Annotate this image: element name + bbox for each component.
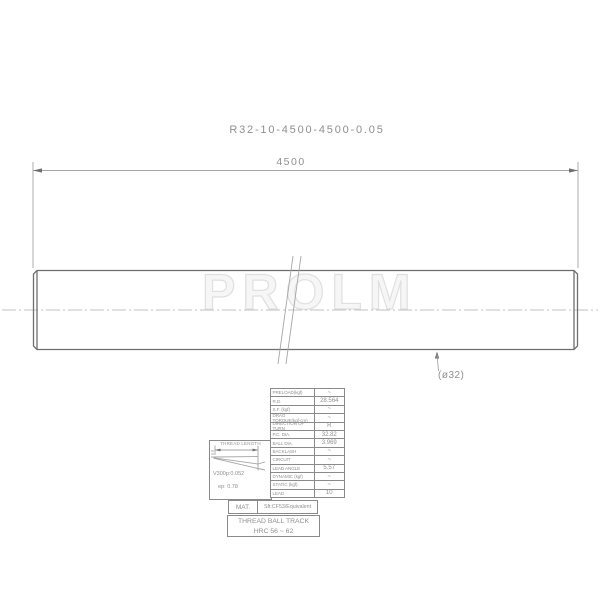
- table-row: DIRECTION OF TURNR: [271, 422, 344, 430]
- hardness-box: THREAD BALL TRACK HRC 56 ~ 62: [227, 515, 320, 537]
- diameter-callout-text: (ø32): [438, 370, 464, 381]
- material-value: Sft:CF53/Equivalent: [258, 501, 317, 513]
- dim-arrow-right: [569, 168, 578, 172]
- diameter-leader: [435, 352, 439, 372]
- table-row: LEAD ANGLE5.57: [271, 464, 344, 472]
- travel-variation-value: V300p:0.052: [213, 471, 244, 477]
- drawing-title: R32-10-4500-4500-0.05: [0, 124, 600, 136]
- table-row: DRAG TORQUE(kgf-cm)~: [271, 413, 344, 421]
- table-row: CIRCUIT~: [271, 455, 344, 463]
- material-label: MAT.: [229, 501, 258, 513]
- table-row: R.D.28.564: [271, 396, 344, 404]
- hardness-line2: HRC 56 ~ 62: [228, 527, 319, 537]
- table-row: S.F. (kgf)~: [271, 405, 344, 413]
- table-row: BALL DIA.3.969: [271, 438, 344, 446]
- travel-error-value: ep: 0.78: [218, 484, 238, 490]
- table-row: PRELOAD(kgf)~: [271, 389, 344, 396]
- table-row: LEAD10: [271, 489, 344, 497]
- thread-detail-heading: THREAD LENGTH: [209, 441, 272, 446]
- length-dimension-lines: [33, 162, 578, 268]
- length-dimension-text: 4500: [241, 156, 341, 168]
- thread-detail-box: [209, 440, 272, 500]
- material-box: MAT. Sft:CF53/Equivalent: [228, 500, 318, 514]
- table-row: BACKLASH~: [271, 447, 344, 455]
- table-row: STATIC (kgf)~: [271, 480, 344, 488]
- table-row: DYNAMIC (kgf)~: [271, 472, 344, 480]
- table-row: P.C. DIA.32.82: [271, 430, 344, 438]
- dim-arrow-left: [33, 168, 42, 172]
- spec-table: PRELOAD(kgf)~ R.D.28.564 S.F. (kgf)~ DRA…: [270, 388, 345, 498]
- hardness-line1: THREAD BALL TRACK: [228, 517, 319, 527]
- drawing-canvas: PROLM: [0, 0, 600, 600]
